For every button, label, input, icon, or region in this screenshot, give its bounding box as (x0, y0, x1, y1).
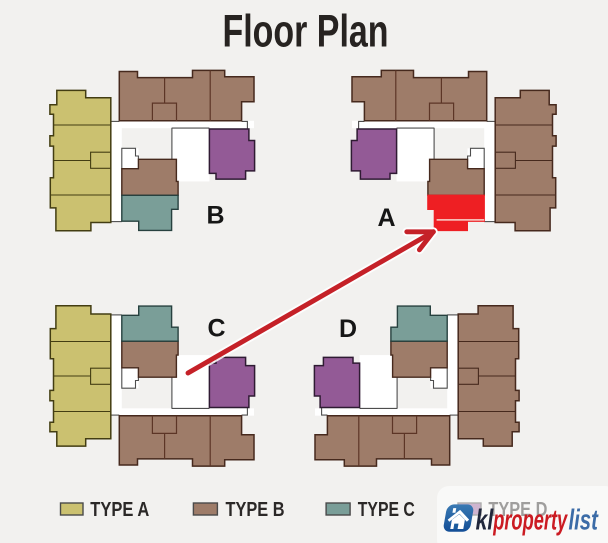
svg-text:TYPE A: TYPE A (90, 499, 149, 521)
svg-text:A: A (378, 204, 396, 232)
svg-text:list: list (569, 505, 599, 537)
svg-text:D: D (339, 315, 357, 343)
svg-text:kl: kl (476, 505, 494, 537)
svg-text:TYPE B: TYPE B (226, 499, 285, 521)
svg-text:property: property (493, 505, 569, 537)
svg-text:TYPE C: TYPE C (358, 499, 415, 521)
svg-text:Floor Plan: Floor Plan (223, 6, 389, 57)
svg-text:C: C (208, 315, 226, 343)
svg-text:B: B (207, 202, 225, 230)
